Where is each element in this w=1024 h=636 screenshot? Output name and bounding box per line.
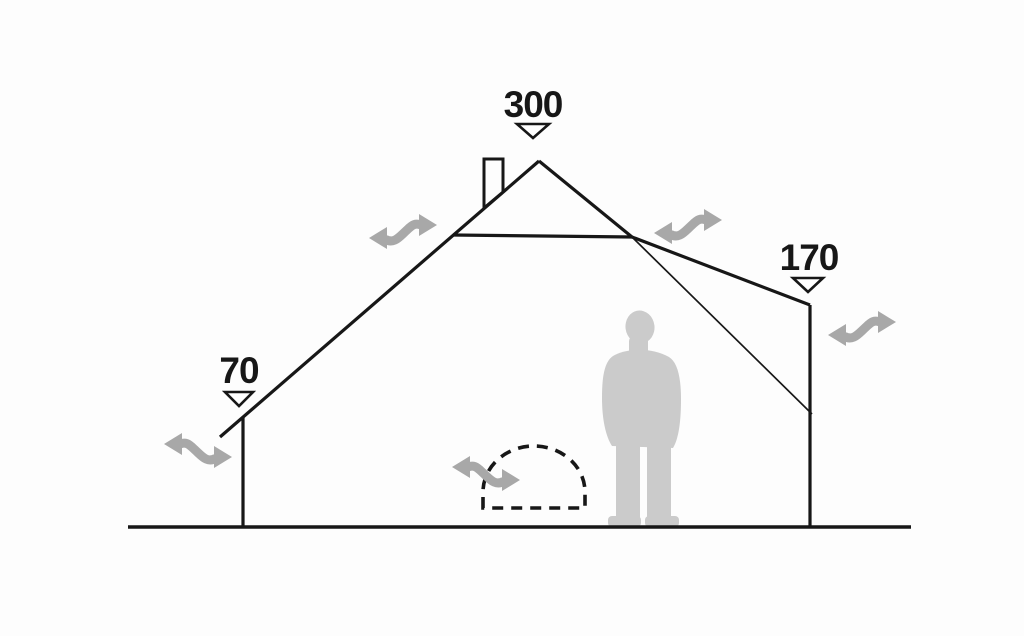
inner-ceiling-line [453, 235, 632, 237]
right-wall-height-label: 170 [780, 237, 839, 278]
airflow-arrow-stove-icon [452, 456, 520, 491]
person-silhouette [602, 309, 681, 527]
airflow-arrow-right-wall-icon [828, 311, 896, 346]
airflow-arrow-left-wall-icon [164, 433, 232, 468]
left-measure-marker-icon [225, 392, 253, 406]
airflow-arrow-roof-right-icon [654, 209, 722, 244]
tent-diagram: 300 70 170 [0, 0, 1024, 636]
left-wall-height-label: 70 [219, 350, 259, 391]
right-measure-marker-icon [793, 278, 823, 292]
peak-measure-marker-icon [517, 124, 549, 138]
peak-height-label: 300 [504, 84, 563, 125]
chimney-icon [484, 159, 503, 208]
person-right-leg [647, 432, 671, 520]
person-left-leg [616, 432, 640, 520]
right-roof-upper-line [539, 161, 632, 237]
stove-opening-dashed-outline [483, 446, 585, 508]
airflow-arrow-roof-left-icon [369, 214, 437, 249]
tent-diagram-canvas: 300 70 170 [0, 0, 1024, 636]
